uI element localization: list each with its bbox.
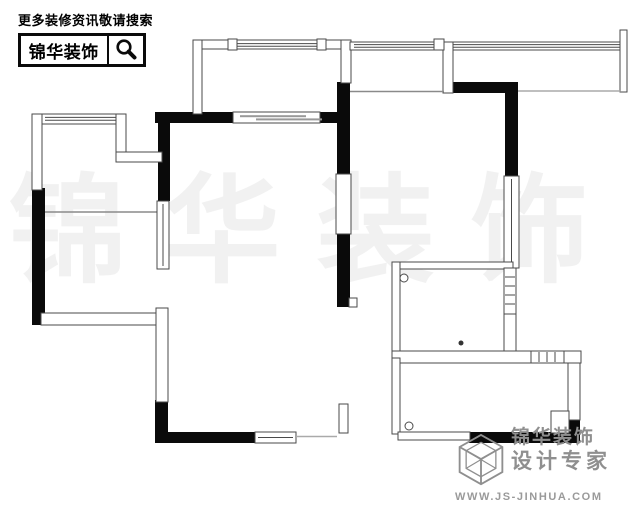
search-button[interactable]: [109, 38, 143, 62]
header-tagline: 更多装修资讯敬请搜索: [18, 10, 153, 29]
door-opening: [336, 174, 351, 234]
header: 更多装修资讯敬请搜索 锦华装饰: [18, 10, 153, 67]
search-box[interactable]: 锦华装饰: [18, 33, 146, 67]
footer-website[interactable]: WWW.JS-JINHUA.COM: [455, 491, 627, 503]
party-wall: [620, 30, 627, 92]
wall-stub: [339, 404, 348, 433]
balcony-top-left: [193, 39, 351, 123]
wall: [337, 82, 350, 176]
bay-wall: [32, 114, 42, 190]
bay-wall: [116, 114, 126, 156]
doors-and-windows: [157, 174, 519, 443]
sliding-door-leaf: [256, 118, 322, 120]
door-hinge: [400, 274, 408, 282]
bay-step-wall: [116, 152, 162, 162]
wall-thin: [568, 363, 580, 420]
wall-thin: [392, 262, 400, 358]
window-post: [228, 39, 237, 50]
footer-slogan: 设计专家: [511, 449, 611, 473]
wall-thin: [41, 313, 157, 325]
wall-end-cap: [349, 298, 357, 307]
window-post: [317, 39, 326, 50]
sliding-door-opening: [233, 112, 320, 123]
drain-dot: [459, 341, 464, 346]
balcony-wall: [350, 42, 627, 50]
cube-logo-icon: [455, 432, 507, 488]
footer-brand: 锦华装饰: [511, 428, 611, 449]
search-icon: [114, 38, 138, 62]
boundary-lower-left: [41, 308, 168, 402]
balcony-wall: [193, 40, 202, 114]
wall-thin: [392, 358, 400, 434]
wall: [32, 188, 45, 325]
wall-thin: [392, 262, 513, 269]
wall: [155, 432, 256, 443]
page: { "header": { "tagline": "更多装修资讯敬请搜索", "…: [0, 0, 633, 508]
hatched-window: [504, 268, 516, 316]
footer-logo-block: 锦华装饰 设计专家 WWW.JS-JINHUA.COM: [455, 428, 627, 503]
brand-label: 锦华装饰: [21, 38, 107, 63]
sliding-door-leaf: [240, 115, 306, 117]
door-hinge: [405, 422, 413, 430]
bay-wall: [42, 114, 120, 124]
wall-thin: [156, 308, 168, 402]
wall: [337, 232, 350, 307]
wall: [505, 90, 518, 178]
bay-window-left: [32, 114, 162, 212]
window-post: [434, 39, 444, 50]
bathroom: [392, 262, 581, 363]
